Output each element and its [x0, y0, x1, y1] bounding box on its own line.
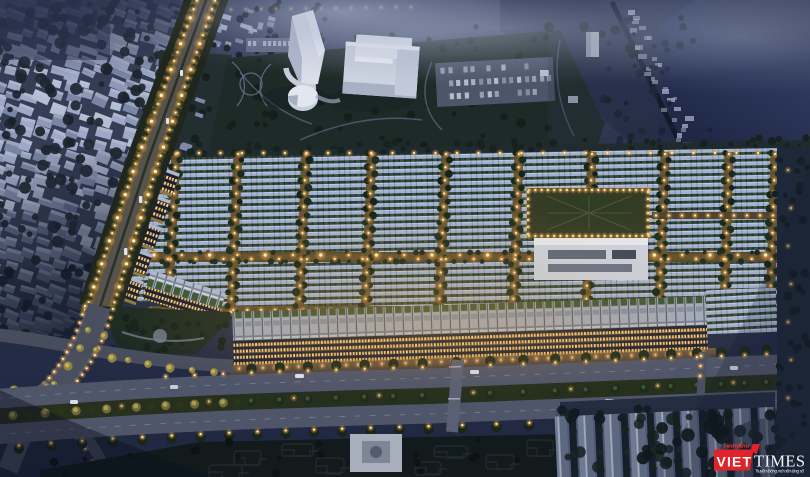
svg-text:VIET: VIET — [717, 454, 752, 470]
svg-text:Truyền thông mở nền tảng số: Truyền thông mở nền tảng số — [755, 469, 805, 474]
svg-text:Tạp chí điện tử: Tạp chí điện tử — [723, 444, 750, 450]
